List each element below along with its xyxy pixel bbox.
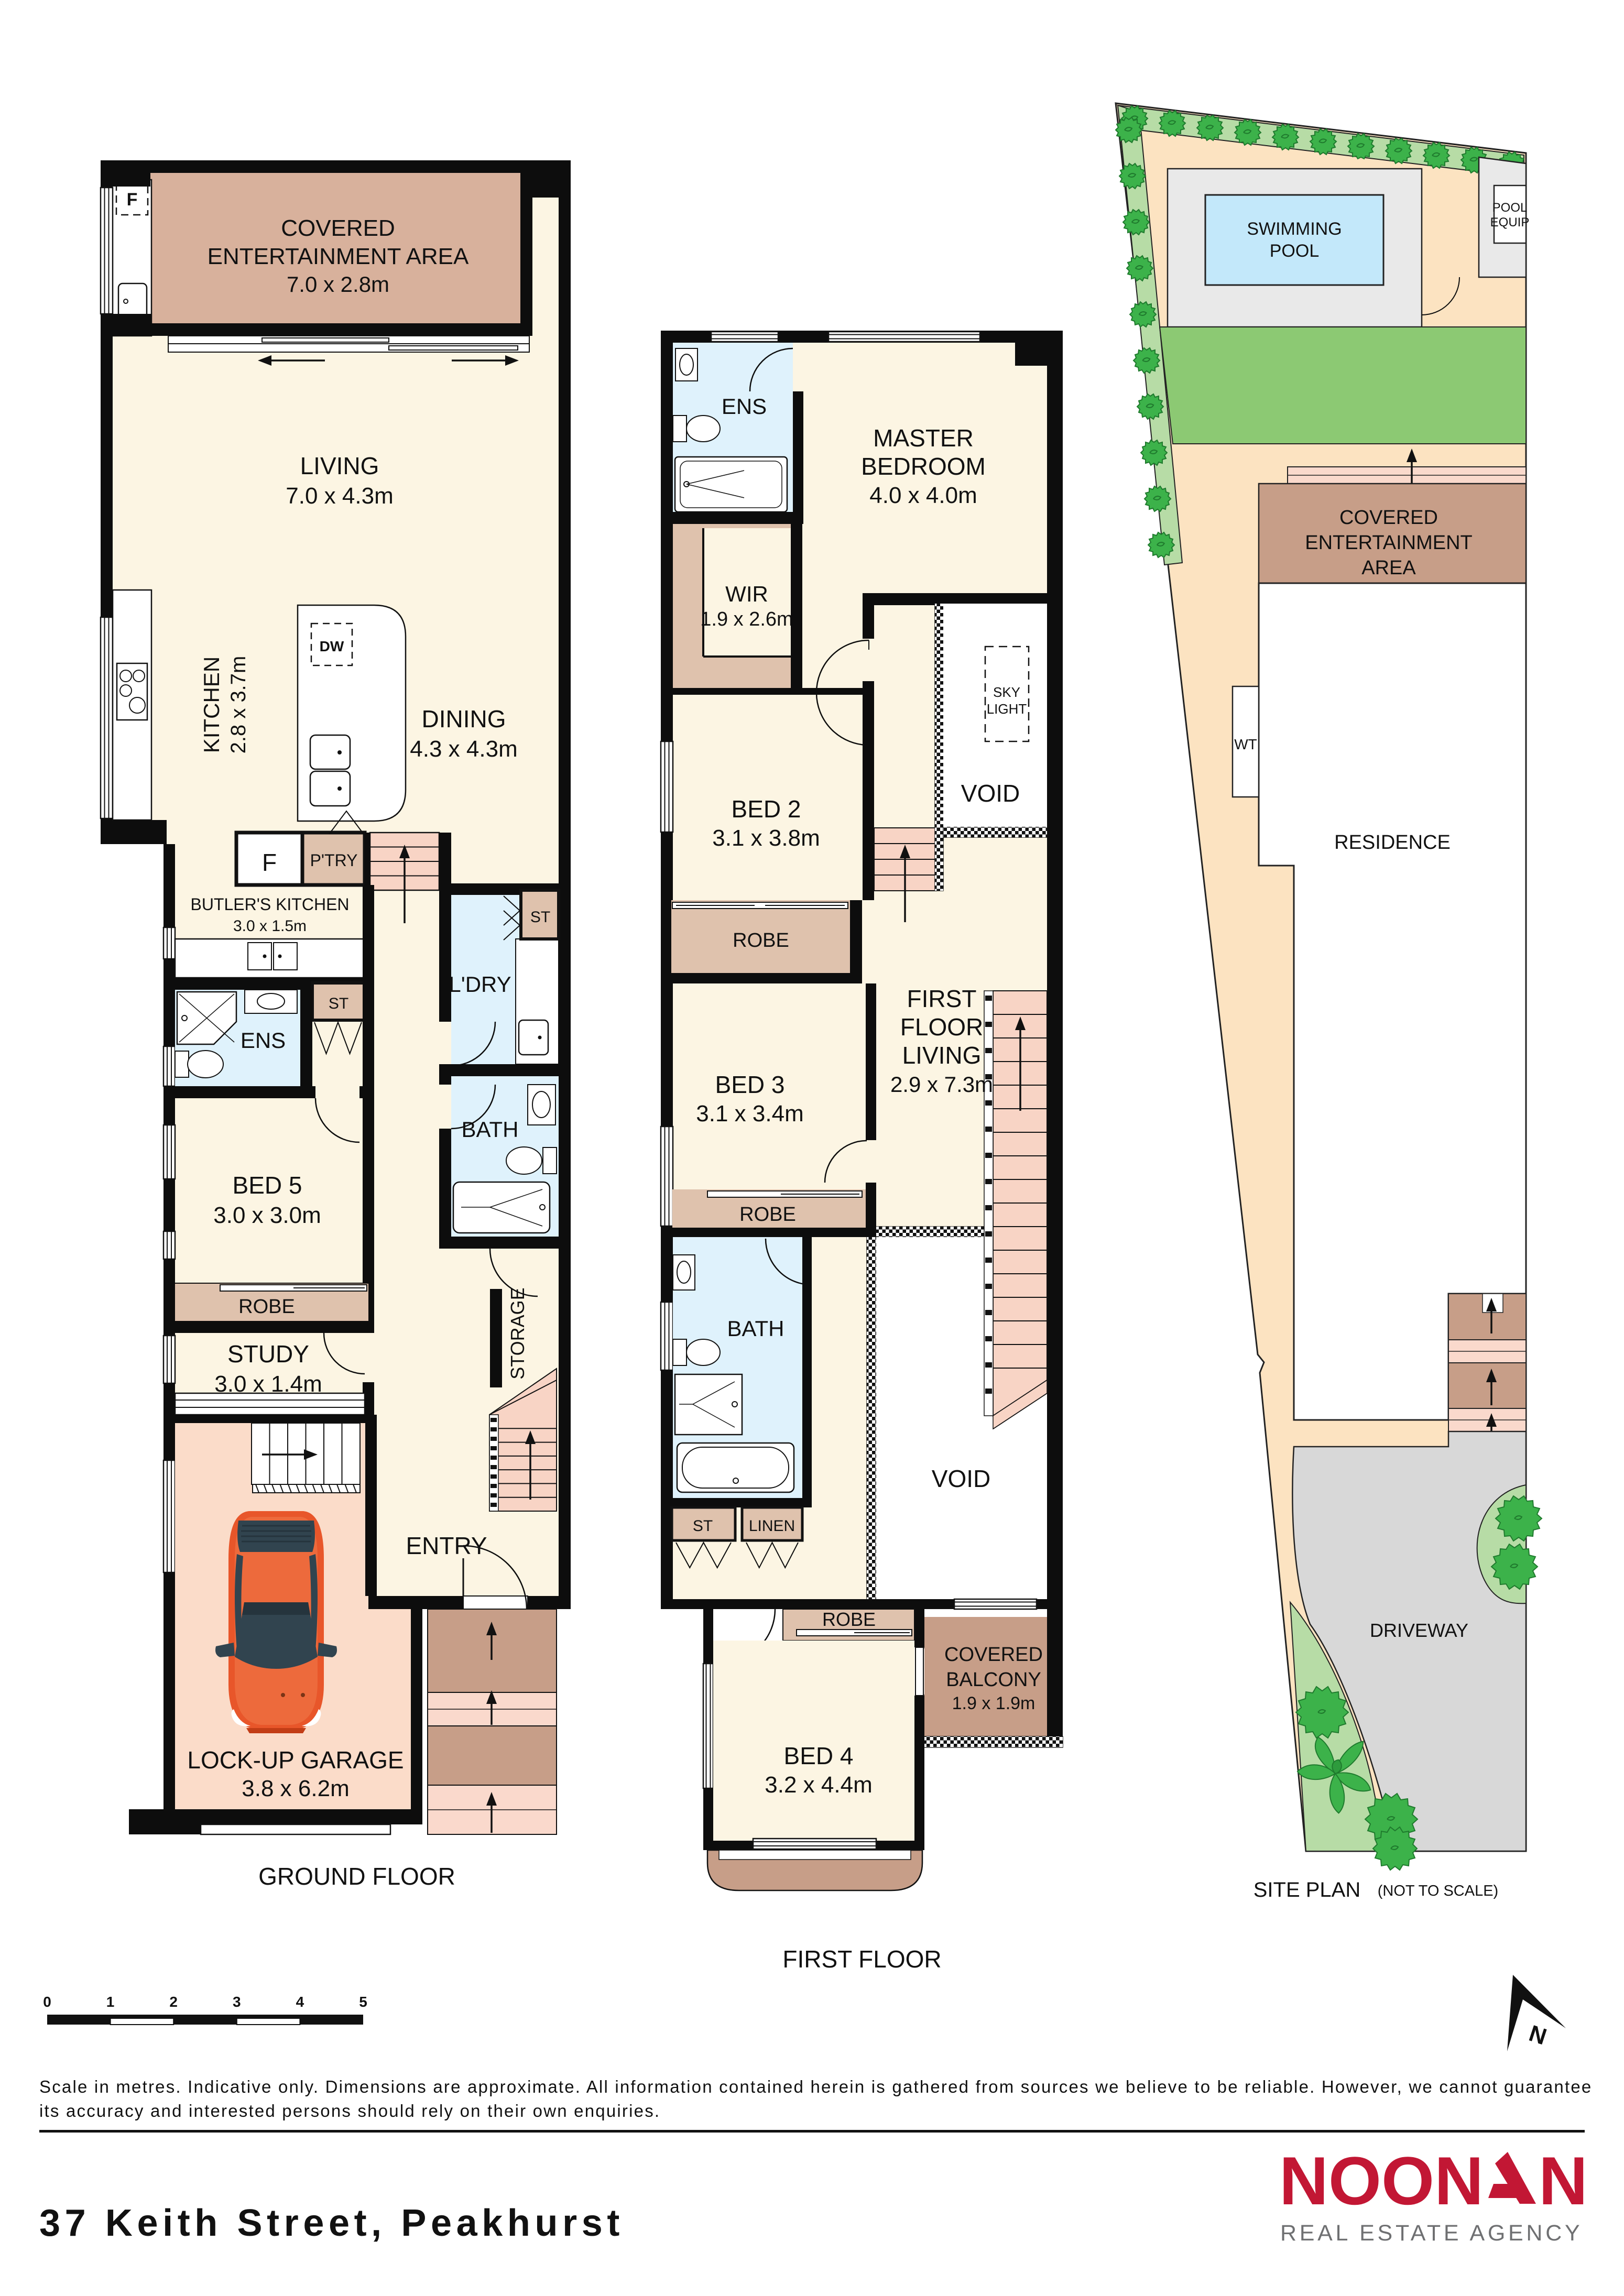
svg-text:3.0 x 3.0m: 3.0 x 3.0m — [213, 1202, 321, 1228]
svg-text:ENTRY: ENTRY — [406, 1532, 487, 1559]
svg-text:2.8 x 3.7m: 2.8 x 3.7m — [227, 656, 250, 754]
svg-text:FIRST FLOOR: FIRST FLOOR — [782, 1945, 941, 1973]
svg-text:COVERED: COVERED — [1339, 507, 1438, 529]
svg-text:L'DRY: L'DRY — [449, 972, 511, 997]
svg-text:37 Keith Street, Peakhurst: 37 Keith Street, Peakhurst — [39, 2202, 624, 2244]
svg-text:N: N — [1539, 2142, 1588, 2219]
svg-text:ENS: ENS — [722, 394, 767, 419]
svg-text:Scale in metres. Indicative on: Scale in metres. Indicative only. Dimens… — [39, 2077, 1592, 2096]
svg-text:BATH: BATH — [727, 1316, 784, 1341]
svg-text:LINEN: LINEN — [749, 1517, 795, 1535]
svg-text:5: 5 — [359, 1994, 367, 2010]
svg-text:VOID: VOID — [932, 1465, 990, 1492]
svg-text:ST: ST — [693, 1517, 713, 1535]
svg-text:BED 4: BED 4 — [784, 1742, 854, 1769]
svg-text:POOL: POOL — [1270, 241, 1319, 261]
svg-text:F: F — [127, 190, 138, 210]
svg-text:2: 2 — [169, 1994, 178, 2010]
svg-text:ENTERTAINMENT AREA: ENTERTAINMENT AREA — [208, 244, 469, 269]
svg-text:SITE PLAN: SITE PLAN — [1254, 1878, 1361, 1901]
svg-text:3.0 x 1.5m: 3.0 x 1.5m — [233, 917, 307, 935]
svg-text:COVERED: COVERED — [944, 1644, 1043, 1666]
svg-text:7.0 x 4.3m: 7.0 x 4.3m — [286, 483, 393, 509]
svg-text:BUTLER'S KITCHEN: BUTLER'S KITCHEN — [190, 895, 349, 914]
svg-text:1: 1 — [106, 1994, 115, 2010]
svg-text:WIR: WIR — [725, 582, 768, 606]
svg-text:4: 4 — [296, 1994, 304, 2010]
svg-text:EQUIP: EQUIP — [1490, 215, 1530, 229]
svg-text:BALCONY: BALCONY — [946, 1669, 1041, 1691]
svg-text:LIVING: LIVING — [902, 1042, 982, 1069]
svg-text:2.9 x 7.3m: 2.9 x 7.3m — [890, 1072, 993, 1097]
svg-text:STORAGE: STORAGE — [507, 1287, 528, 1379]
svg-text:BED 5: BED 5 — [233, 1172, 302, 1199]
svg-text:ST: ST — [329, 995, 348, 1012]
svg-text:LOCK-UP GARAGE: LOCK-UP GARAGE — [187, 1746, 404, 1774]
svg-text:1.9 x 1.9m: 1.9 x 1.9m — [952, 1693, 1036, 1713]
svg-text:REAL ESTATE AGENCY: REAL ESTATE AGENCY — [1280, 2221, 1583, 2246]
svg-text:POOL: POOL — [1492, 201, 1528, 215]
svg-text:ENTERTAINMENT: ENTERTAINMENT — [1305, 532, 1473, 554]
svg-text:ROBE: ROBE — [733, 930, 789, 952]
svg-text:FIRST: FIRST — [907, 985, 977, 1012]
svg-text:ENS: ENS — [241, 1028, 286, 1053]
svg-text:3.8 x 6.2m: 3.8 x 6.2m — [242, 1776, 349, 1801]
svg-text:SKY: SKY — [993, 684, 1020, 700]
svg-text:LIVING: LIVING — [300, 452, 379, 479]
svg-text:F: F — [262, 849, 277, 876]
svg-text:4.0 x 4.0m: 4.0 x 4.0m — [869, 483, 977, 508]
svg-text:1.9 x 2.6m: 1.9 x 2.6m — [700, 608, 793, 630]
svg-text:(NOT TO SCALE): (NOT TO SCALE) — [1378, 1883, 1498, 1899]
svg-text:4.3 x 4.3m: 4.3 x 4.3m — [410, 736, 517, 762]
svg-text:SWIMMING: SWIMMING — [1247, 219, 1342, 239]
svg-text:its accuracy and interested pe: its accuracy and interested persons shou… — [39, 2101, 660, 2120]
svg-text:BEDROOM: BEDROOM — [861, 453, 986, 480]
svg-text:BATH: BATH — [462, 1117, 519, 1142]
svg-text:3.2 x 4.4m: 3.2 x 4.4m — [765, 1772, 872, 1798]
svg-text:MASTER: MASTER — [873, 424, 974, 452]
svg-text:DRIVEWAY: DRIVEWAY — [1370, 1620, 1468, 1641]
svg-text:LIGHT: LIGHT — [987, 701, 1027, 717]
svg-text:KITCHEN: KITCHEN — [199, 657, 224, 753]
svg-text:ROBE: ROBE — [739, 1204, 796, 1226]
svg-text:3.1 x 3.4m: 3.1 x 3.4m — [696, 1101, 803, 1127]
svg-text:RESIDENCE: RESIDENCE — [1334, 832, 1451, 854]
svg-text:GROUND FLOOR: GROUND FLOOR — [258, 1863, 455, 1890]
svg-text:7.0 x 2.8m: 7.0 x 2.8m — [287, 272, 389, 297]
svg-text:COVERED: COVERED — [281, 215, 395, 241]
svg-text:P'TRY: P'TRY — [310, 851, 358, 870]
svg-text:DINING: DINING — [422, 705, 506, 732]
svg-text:WT: WT — [1234, 736, 1257, 752]
svg-text:FLOOR: FLOOR — [900, 1013, 983, 1041]
svg-text:NOON: NOON — [1279, 2142, 1484, 2219]
svg-text:VOID: VOID — [961, 780, 1020, 807]
svg-text:ROBE: ROBE — [822, 1609, 876, 1630]
svg-text:DW: DW — [320, 638, 344, 654]
svg-text:AREA: AREA — [1361, 557, 1416, 579]
svg-text:3.1 x 3.8m: 3.1 x 3.8m — [712, 825, 820, 851]
svg-text:3: 3 — [233, 1994, 241, 2010]
svg-text:0: 0 — [43, 1994, 51, 2010]
svg-text:BED 2: BED 2 — [732, 795, 801, 823]
svg-text:BED 3: BED 3 — [715, 1071, 785, 1098]
svg-text:STUDY: STUDY — [227, 1340, 309, 1368]
svg-text:ST: ST — [530, 909, 550, 926]
svg-text:ROBE: ROBE — [238, 1296, 295, 1318]
